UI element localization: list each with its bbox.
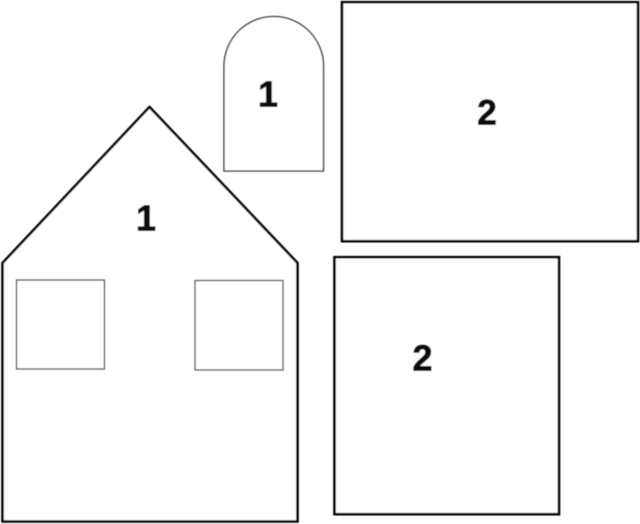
svg-text:2: 2 (477, 94, 496, 133)
svg-text:1: 1 (258, 73, 278, 114)
svg-text:1: 1 (136, 198, 156, 239)
svg-text:2: 2 (412, 338, 432, 379)
